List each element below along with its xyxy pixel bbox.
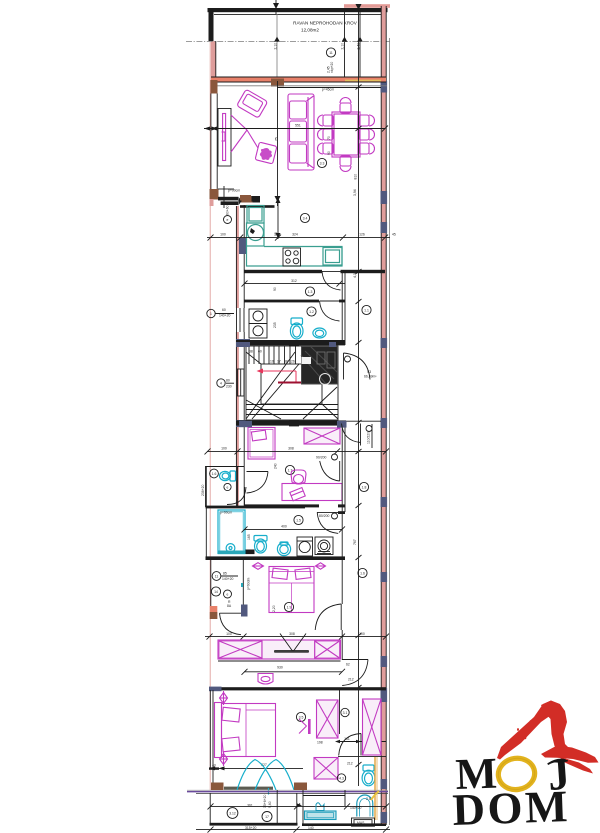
svg-text:312: 312 <box>291 279 297 283</box>
svg-text:324: 324 <box>292 233 298 237</box>
svg-text:60: 60 <box>258 350 262 354</box>
svg-text:930: 930 <box>277 665 283 669</box>
svg-text:11: 11 <box>329 51 333 55</box>
svg-text:nkp+20: nkp+20 <box>330 62 334 73</box>
svg-text:4.3: 4.3 <box>339 777 344 781</box>
svg-text:12,08m2: 12,08m2 <box>301 28 319 33</box>
svg-text:MAS: MAS <box>357 821 365 825</box>
svg-text:1.1: 1.1 <box>364 309 369 313</box>
svg-text:1.9: 1.9 <box>287 606 292 610</box>
svg-text:212: 212 <box>347 762 353 766</box>
svg-text:80/200: 80/200 <box>319 514 329 518</box>
svg-text:2,10: 2,10 <box>274 43 278 50</box>
svg-text:140+20: 140+20 <box>222 577 234 581</box>
svg-text:1: 1 <box>210 312 212 316</box>
svg-text:126: 126 <box>359 233 365 237</box>
svg-text:1.3: 1.3 <box>308 290 313 294</box>
svg-text:140+20: 140+20 <box>219 314 231 318</box>
svg-text:3.12: 3.12 <box>229 812 236 816</box>
svg-text:17: 17 <box>265 815 269 819</box>
svg-text:551: 551 <box>295 124 301 128</box>
svg-text:e: e <box>227 218 229 222</box>
svg-text:4: 4 <box>220 382 222 386</box>
svg-text:100: 100 <box>226 632 232 636</box>
svg-text:e: e <box>227 593 229 597</box>
svg-text:3.4: 3.4 <box>303 217 308 221</box>
svg-text:38: 38 <box>249 350 253 354</box>
svg-text:p=45cm: p=45cm <box>322 88 334 92</box>
svg-text:p=90dm: p=90dm <box>247 577 251 590</box>
svg-text:161: 161 <box>344 737 350 741</box>
svg-text:1.6: 1.6 <box>212 472 217 476</box>
svg-text:8A: 8A <box>227 604 232 608</box>
svg-text:14: 14 <box>214 590 218 594</box>
svg-text:3,94: 3,94 <box>353 189 357 196</box>
svg-text:308: 308 <box>288 446 294 450</box>
svg-text:17: 17 <box>277 360 281 364</box>
svg-text:100: 100 <box>220 233 226 237</box>
svg-text:361: 361 <box>247 804 253 808</box>
svg-text:11: 11 <box>215 575 219 579</box>
svg-text:235: 235 <box>273 322 277 328</box>
svg-text:75: 75 <box>275 137 279 141</box>
svg-text:2,5: 2,5 <box>366 797 371 801</box>
svg-text:DOM: DOM <box>452 781 571 833</box>
svg-text:e: e <box>227 485 229 489</box>
svg-text:3.3: 3.3 <box>320 162 325 166</box>
svg-text:110/220: 110/220 <box>366 432 370 444</box>
svg-text:60+60: 60+60 <box>226 205 230 215</box>
svg-text:100: 100 <box>221 446 227 450</box>
svg-text:240: 240 <box>274 463 278 469</box>
svg-text:90: 90 <box>273 287 277 291</box>
svg-text:2,20: 2,20 <box>272 605 276 612</box>
svg-text:70: 70 <box>327 136 331 140</box>
svg-text:4,34: 4,34 <box>353 271 357 278</box>
svg-text:1.2: 1.2 <box>309 310 314 314</box>
svg-text:1.8: 1.8 <box>362 486 367 490</box>
svg-text:400: 400 <box>281 525 287 529</box>
svg-text:230: 230 <box>226 385 232 389</box>
svg-text:90: 90 <box>327 151 331 155</box>
svg-text:2,10: 2,10 <box>341 43 345 50</box>
svg-text:3.1: 3.1 <box>343 711 348 715</box>
svg-text:90/200: 90/200 <box>316 456 326 460</box>
svg-text:40: 40 <box>212 764 216 768</box>
svg-text:767: 767 <box>353 539 357 545</box>
svg-text:212: 212 <box>348 678 354 682</box>
svg-text:66,69m²: 66,69m² <box>364 375 377 379</box>
svg-text:10: 10 <box>270 360 274 364</box>
svg-text:62: 62 <box>346 663 350 667</box>
svg-text:RAVAN NEPROHODAN KROV: RAVAN NEPROHODAN KROV <box>293 21 358 26</box>
svg-text:9,60: 9,60 <box>268 801 272 808</box>
svg-text:85: 85 <box>223 572 227 576</box>
svg-text:80: 80 <box>226 379 230 383</box>
svg-text:198: 198 <box>317 741 323 745</box>
svg-text:140: 140 <box>308 826 314 830</box>
svg-text:100: 100 <box>359 632 365 636</box>
svg-text:60: 60 <box>222 308 226 312</box>
svg-text:45: 45 <box>392 233 396 237</box>
svg-text:26: 26 <box>291 360 295 364</box>
svg-text:p=90cm: p=90cm <box>220 511 232 515</box>
svg-text:165: 165 <box>247 534 251 540</box>
svg-text:308: 308 <box>289 632 295 636</box>
svg-text:1.6: 1.6 <box>360 572 365 576</box>
svg-text:95: 95 <box>274 232 278 236</box>
svg-text:810: 810 <box>354 174 358 180</box>
svg-text:1.5: 1.5 <box>296 519 301 523</box>
svg-text:236+20: 236+20 <box>201 484 205 496</box>
svg-text:315+20: 315+20 <box>245 826 257 830</box>
